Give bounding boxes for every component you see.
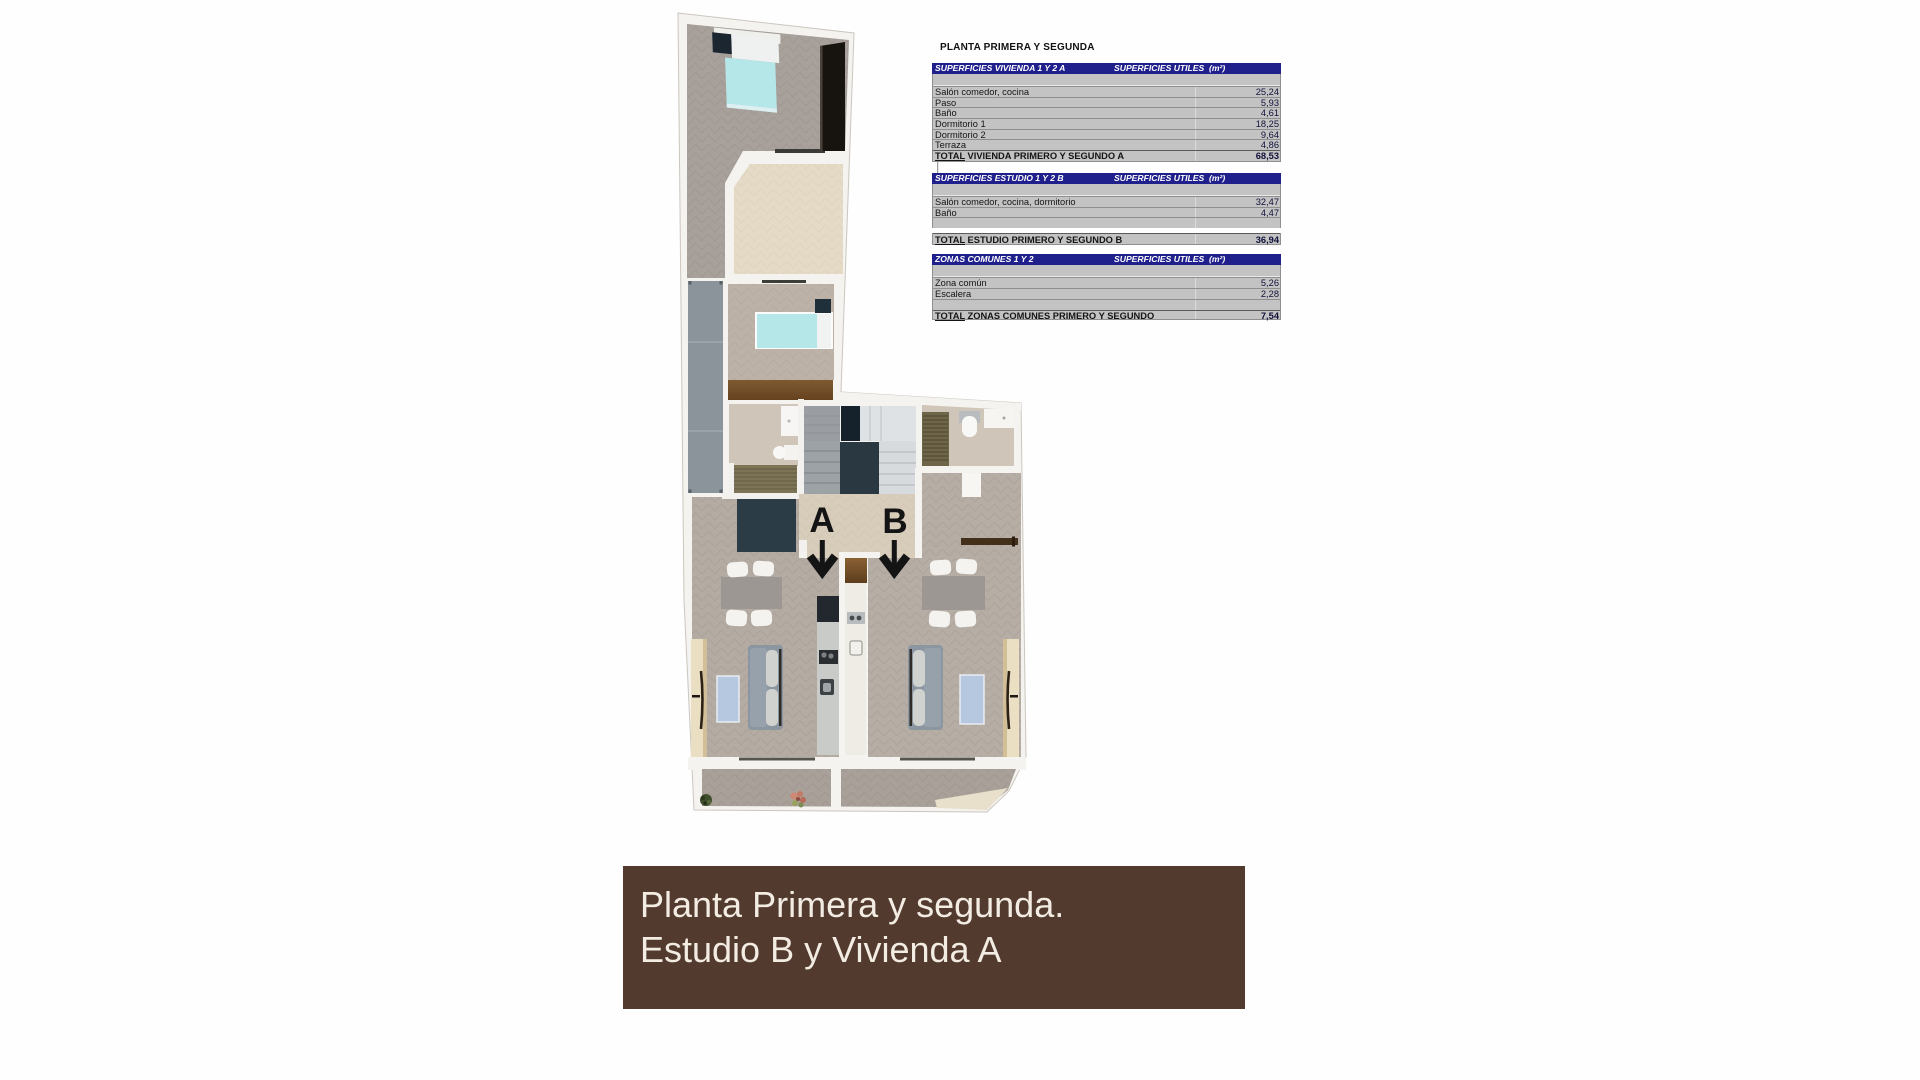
svg-text:B: B bbox=[882, 502, 907, 541]
svg-text:A: A bbox=[809, 501, 834, 540]
